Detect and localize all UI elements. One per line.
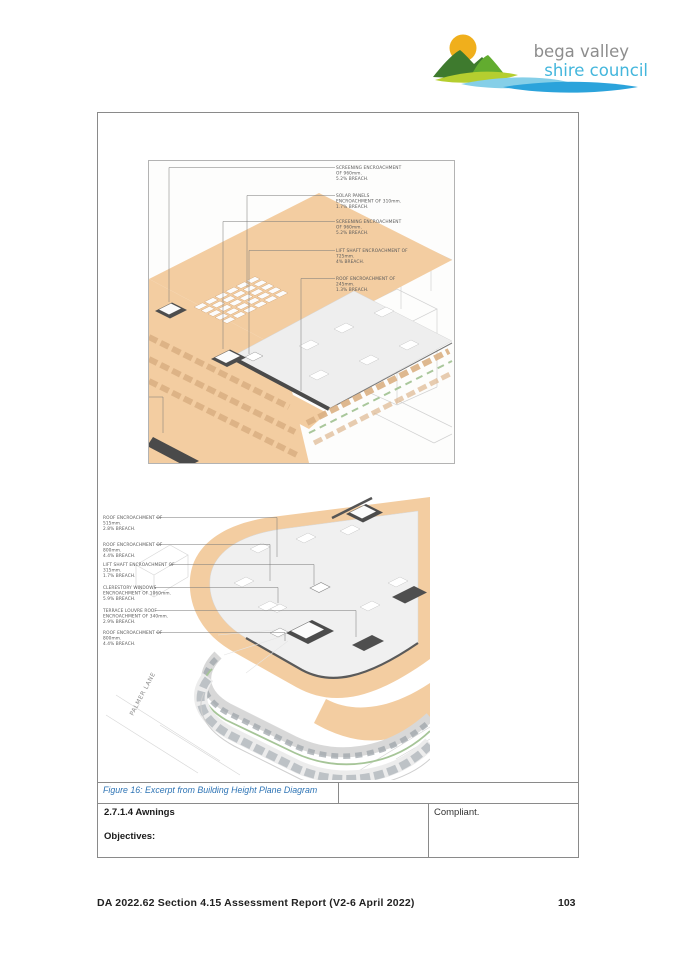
footer-page-number: 103 bbox=[558, 897, 576, 909]
street-label: PALMER LANE bbox=[129, 671, 158, 717]
figure-caption: Figure 16: Excerpt from Building Height … bbox=[103, 785, 403, 795]
building-height-plane-diagram-bottom: PALMER LANE ROOF ENCROACHMENT OF515mm.2.… bbox=[100, 487, 430, 780]
section-title: 2.7.1.4 Awnings bbox=[104, 807, 175, 818]
compliance-status: Compliant. bbox=[434, 807, 479, 818]
diagram-annotation: ROOF ENCROACHMENT OF800mm.4.4% BREACH. bbox=[103, 630, 163, 647]
footer-report-title: DA 2022.62 Section 4.15 Assessment Repor… bbox=[97, 897, 415, 909]
document-page: bega valley shire council bbox=[0, 0, 675, 953]
diagram-annotation: ROOF ENCROACHMENT OF515mm.2.8% BREACH. bbox=[103, 515, 163, 532]
logo-text-line2: shire council bbox=[544, 61, 648, 80]
diagram-annotation: ROOF ENCROACHMENT OF800mm.4.4% BREACH. bbox=[103, 542, 163, 559]
diagram-annotation: SOLAR PANELSENCROACHMENT OF 310mm.1.7% B… bbox=[336, 193, 401, 210]
logo-text-line1: bega valley bbox=[534, 42, 630, 61]
section-subheading: Objectives: bbox=[104, 831, 155, 842]
building-height-plane-diagram-top: SCREENING ENCROACHMENTOF 960mm.5.2% BREA… bbox=[148, 160, 455, 464]
awnings-row-divider bbox=[428, 803, 429, 858]
bottom-diagram-annotations: ROOF ENCROACHMENT OF515mm.2.8% BREACH.RO… bbox=[102, 515, 175, 647]
council-logo: bega valley shire council bbox=[433, 31, 648, 95]
diagram-annotation: LIFT SHAFT ENCROACHMENT OF315mm.1.7% BRE… bbox=[103, 562, 175, 579]
awnings-row-top-border bbox=[97, 803, 579, 804]
diagram-annotation: SCREENING ENCROACHMENTOF 960mm.5.2% BREA… bbox=[336, 165, 402, 182]
